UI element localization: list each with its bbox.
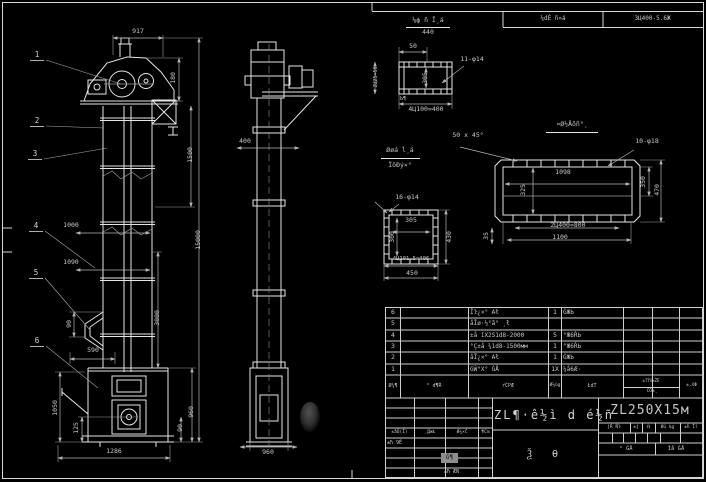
bom-row-desc: GŴ°X° ĠÅ: [470, 366, 546, 373]
detail-top-left-dim: 2Ц25=50: [373, 58, 379, 96]
balloon-6: 6: [30, 336, 44, 347]
bom-row-mat: °Ж6ŘЬ: [563, 332, 621, 339]
bom-row-no: 1: [386, 366, 400, 374]
detail-top-dim-50: 50: [402, 43, 424, 51]
dim-90-hopper: 90: [66, 315, 74, 333]
title-block-doc-type: Ѯ Ѳ: [494, 449, 598, 461]
dim-90-shaft: 90: [177, 419, 185, 437]
detail-right-inner-height: 325: [520, 179, 528, 201]
front-view: [62, 38, 178, 447]
title-block-model: ZL250X15м: [600, 403, 700, 419]
detail-right-inner-width: 1098: [549, 169, 577, 177]
balloon-1: 1: [30, 50, 44, 61]
bom-row-qty: 1X: [548, 366, 562, 374]
bom-row-mat: °Ж6ŘЬ: [563, 343, 621, 350]
dim-1050: 1050: [52, 394, 60, 422]
dim-590: 590: [78, 347, 108, 355]
bom-header-weight: ±ТŶX±ŽĒ: [624, 379, 678, 384]
detail-mid-total-dim: 450: [400, 270, 424, 278]
dim-180: 180: [170, 66, 178, 90]
bom-row-desc: °Ç±å ¾1d8-1500мм: [470, 343, 546, 350]
scale-header-file: Øü ķg: [655, 425, 680, 430]
detail-mid-inner-height: 300: [389, 226, 397, 248]
bom-row-qty: 1: [548, 309, 562, 317]
detail-right-dim-35: 35: [483, 227, 491, 245]
bom-header-name: ŕĆРÆ: [490, 383, 526, 389]
detail-mid-inner-width: 305: [400, 217, 422, 225]
sign-header-3: Ø¼×Ċ: [446, 430, 478, 435]
balloon-3: 3: [28, 149, 42, 160]
bom-row-mat: ĠЖЬ: [563, 309, 621, 316]
detail-mid-title-1: Øøá ĺ¸á: [379, 147, 421, 155]
detail-top-title: ⅛ф ñ Ī¸á: [404, 17, 452, 25]
dim-3000: 3000: [154, 304, 162, 332]
dim-15000: 15000: [195, 223, 203, 257]
bom-header-weight-sub: ĆŌ±¸: [638, 389, 666, 394]
leader-lines: [375, 66, 634, 213]
balloon-5: 5: [29, 268, 43, 279]
sheet-count-left: ° ĠÅ: [610, 446, 642, 453]
detail-right-flange: [495, 133, 640, 223]
detail-top-inner-dim: 305: [422, 67, 430, 89]
dim-400-side: 400: [232, 138, 258, 146]
bom-row-qty: 5: [548, 332, 562, 340]
detail-mid-pitch-dim: 4Ц101.5=406: [385, 256, 437, 263]
scale-header-stage: ĵŔ Ňŀ: [598, 425, 630, 430]
bom-header-note: ±,XΦ: [680, 383, 703, 388]
sign-header-4: ¶Ćm: [479, 430, 492, 435]
dim-960-front: 960: [188, 400, 196, 424]
dim-1286: 1286: [97, 448, 131, 456]
dim-1500: 1500: [187, 141, 195, 169]
detail-mid-holes: 16-φ14: [390, 194, 424, 202]
detail-top-subtitle: 440: [410, 29, 446, 37]
bom-row-desc: ±å ĭX2Ѕ1d8-2000: [470, 332, 546, 339]
detail-right-chamfer-note: 50 x 45°: [450, 132, 486, 140]
bom-row-no: 5: [386, 320, 400, 328]
strip-model: 3Ц400-5.6Ж: [605, 15, 700, 22]
dim-1000: 1000: [56, 222, 86, 230]
bom-row-no: 4: [386, 332, 400, 340]
cad-drawing-sheet: ¼dÈ ñ»á 3Ц400-5.6Ж 1 2 3 4 5 6 917 180 1…: [0, 0, 706, 482]
detail-top-note: Ь¶: [395, 96, 411, 102]
bom-row-qty: 1: [548, 354, 562, 362]
bom-row-mat: ĠЖЬ: [563, 354, 621, 361]
dim-1090: 1090: [56, 259, 86, 267]
detail-right-dim-350: 350: [640, 171, 648, 193]
bom-header-qty: Ø¼ûg: [548, 383, 562, 388]
bom-header-no: Ø¼¶: [385, 383, 401, 389]
bom-row-desc: åĪø·½°ã° ¸ł: [470, 320, 546, 327]
detail-top-bottom-dim: 4Ц100=400: [401, 106, 451, 114]
dim-125: 125: [73, 417, 81, 439]
sheet-count-right: Ìå ĠÅ: [658, 446, 694, 453]
bom-row-no: 3: [386, 343, 400, 351]
bom-row-mat: ¼å6Æ·: [563, 366, 621, 373]
scale-header-date: ±ĥ Ĭſ: [680, 425, 702, 430]
title-block-title: ZL¶·ê½ì d é½ñ: [494, 408, 598, 422]
sign-header-1: ±åŨ(Ĭ): [385, 430, 414, 435]
detail-right-pitch-dim: 2Ц400=800: [538, 222, 598, 230]
approval-stamp: Ġ¶: [441, 453, 458, 463]
balloon-2: 2: [30, 116, 44, 127]
sign-row-checker: ±Ћ ÆÑ: [437, 469, 466, 475]
detail-mid-right-dim: 430: [446, 226, 454, 248]
front-view-break-lines: [103, 84, 154, 235]
scale-header-weight: ±ĵ: [630, 425, 642, 430]
dim-960-side: 960: [253, 449, 283, 457]
bom-row-no: 6: [386, 309, 400, 317]
balloon-4: 4: [29, 221, 43, 232]
detail-mid-title-2: ÏôÐý×°: [379, 162, 421, 170]
scale-header-scale: Ҋ: [642, 425, 655, 430]
bom-header-material: ŁdТ: [578, 383, 606, 389]
detail-top-holes: 11-φ14: [455, 56, 489, 64]
bom-row-qty: 1: [548, 343, 562, 351]
side-view: [245, 42, 318, 446]
dim-917: 917: [123, 28, 153, 36]
detail-right-dim-470: 470: [654, 179, 662, 201]
bom-row-no: 2: [386, 354, 400, 362]
sign-header-2: ¸ДжŁ: [415, 430, 445, 435]
detail-right-title: ¤Ø½Åõñ°¸: [542, 121, 602, 129]
bom-row-desc: Ĩŀ¿×° Ał: [470, 309, 546, 316]
sign-row-designer: ±ħ 9Ĕ: [387, 440, 415, 446]
detail-right-holes: 10-φ18: [630, 138, 664, 146]
scan-smudge: [300, 402, 320, 432]
bom-header-code: ° d¶Ŕ: [420, 383, 448, 389]
detail-right-dim-1100: 1100: [546, 234, 574, 242]
strip-label: ¼dÈ ñ»á: [505, 15, 601, 22]
bom-row-desc: åĨ¿×° Ał: [470, 354, 546, 361]
